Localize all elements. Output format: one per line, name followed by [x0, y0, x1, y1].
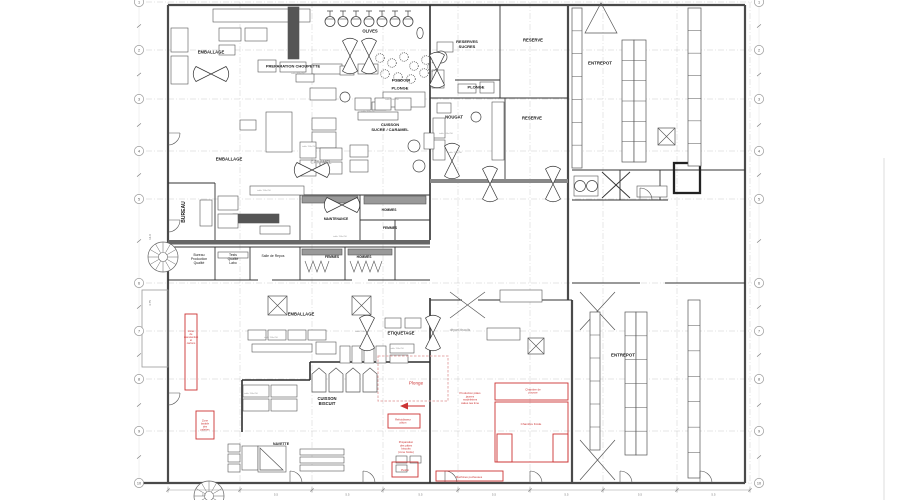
cooking-kettle: [338, 17, 348, 27]
machine: [300, 449, 344, 455]
grid-bubble-number: 2: [758, 48, 760, 52]
grid-bubble-number: 10: [137, 481, 141, 485]
oven: [312, 368, 326, 392]
room-label-cuisson: CUISSONBISCUIT: [317, 396, 336, 406]
grid-bubble-number: 6: [758, 281, 760, 285]
red-annotation-label-chambre-froide: Chambre froide: [521, 422, 542, 426]
machine: [228, 444, 240, 452]
machine: [266, 112, 292, 152]
machine: [385, 318, 401, 328]
machine: [219, 28, 241, 41]
grid-bubble-number: 1: [138, 0, 140, 4]
machine: [424, 133, 434, 149]
room-label-cuisson: CUISSONSUCRE / CARAMEL: [371, 122, 409, 132]
grid-bubble-number: 4: [758, 149, 760, 153]
equipment-label-table-700x700: table 700x700: [302, 145, 317, 148]
blob-shape: [420, 69, 429, 78]
equipment-label-table-700x700: table 700x700: [361, 110, 376, 113]
room-label-reserve: RESERVE: [522, 115, 542, 120]
door-arc: [168, 220, 180, 232]
room-label-fondoir: FONDOIR: [392, 77, 411, 82]
machine: [487, 328, 520, 340]
grid-bubble-number: 9: [758, 429, 760, 433]
blob-shape: [410, 62, 419, 71]
cooking-kettle: [325, 17, 335, 27]
room-label-nougat: NOUGAT: [445, 114, 463, 119]
room-label-bureau: BUREAU: [181, 201, 187, 223]
room-label-plonge: PLONGE: [468, 84, 485, 89]
red-annotation-label-p-trin: Pétrin: [401, 468, 409, 472]
equipment-label-table-700x700: table 700x700: [390, 347, 405, 350]
machine: [243, 399, 269, 411]
machine: [433, 118, 445, 138]
red-annotation-label-plonge: Plonge: [409, 381, 424, 386]
wall-band: [168, 240, 430, 245]
dimension-label: 5.5: [564, 493, 569, 497]
cooking-kettle: [390, 17, 400, 27]
door-arc: [363, 471, 375, 483]
dimension-label: 5.5: [638, 493, 643, 497]
kettle-stand: [392, 11, 398, 16]
red-zone-box: [185, 314, 197, 390]
red-zone-box: [553, 434, 568, 462]
machine: [252, 344, 312, 352]
machine: [350, 160, 368, 172]
room-label-maintenance: MAINTENANCE: [324, 217, 349, 221]
grid-bubble-number: 4: [138, 149, 140, 153]
red-annotation-label-chambre-de: Chambre depousse: [525, 387, 541, 394]
room-label-olives: OLIVES: [362, 28, 378, 33]
machine: [350, 145, 368, 157]
grid-bubble-number: 10: [757, 481, 761, 485]
room-label-emballage: EMBALLAGE: [198, 49, 225, 54]
red-annotation-label-zone: Zonelavabledespalettes: [200, 418, 210, 431]
machine: [228, 454, 240, 462]
red-annotation-label-refroidisseur: Refroidisseurpâton: [395, 417, 411, 424]
room-label-reserve: RESERVE: [523, 37, 543, 42]
machine: [218, 196, 238, 210]
equipment-label-table-700x700: table 700x700: [448, 151, 463, 154]
equipment-label-table-700x700: table 700x700: [244, 392, 259, 395]
pallet-rack: [688, 8, 701, 166]
kettle: [408, 140, 420, 152]
machine: [228, 464, 240, 472]
cross-box: [528, 338, 544, 354]
machine: [200, 200, 212, 226]
room-label-femmes: FEMMES: [325, 255, 340, 259]
equipment-label-table-700x700: table 700x700: [257, 189, 272, 192]
room-label-entrepot: ENTREPOT: [611, 353, 635, 358]
x-brace: [450, 292, 485, 318]
double-door-bowtie: [343, 38, 358, 74]
equipment-label-table-700x700: table 700x700: [439, 132, 454, 135]
kettle-stand: [353, 11, 359, 16]
double-door-bowtie: [483, 166, 498, 202]
door-arc: [290, 471, 302, 483]
machine: [245, 28, 267, 41]
room-label-preparation-choupette: PREPARATION CHOUPETTE: [266, 63, 321, 68]
kettle: [413, 160, 425, 172]
machine: [300, 465, 344, 471]
machine: [500, 290, 542, 302]
double-door-bowtie: [193, 67, 229, 82]
room-label-reserves: RESERVESSUCRES: [456, 39, 478, 49]
equipment-label-table-700x700: table 700x700: [264, 336, 279, 339]
room-label-salle-de-repos: Salle de Repos: [262, 254, 285, 258]
door-arc: [620, 471, 632, 483]
red-zone-box: [495, 402, 568, 462]
machine: [288, 7, 299, 59]
oven: [363, 368, 377, 392]
red-annotation-label-zone: Zonedemanutentionetcartons: [184, 329, 199, 345]
dimension-label: 4.75: [148, 300, 152, 306]
machine: [218, 214, 238, 228]
machine: [405, 318, 421, 328]
room-label-d-part-biscuits: départ biscuits: [450, 328, 471, 332]
room-label-caramel: CARAMEL: [311, 159, 332, 164]
storage-racks: [572, 8, 701, 478]
pallet-rack: [688, 300, 700, 478]
room-label-entrepot: ENTREPOT: [588, 61, 612, 66]
cooking-kettle: [403, 17, 413, 27]
machine: [312, 118, 336, 130]
roof-brace: [585, 3, 617, 33]
bench: [305, 261, 329, 272]
cross-box: [658, 128, 675, 145]
machine: [296, 74, 314, 82]
room-label-bureau: BureauProductionQualité: [191, 253, 207, 265]
wall-band: [430, 179, 568, 183]
red-zone-box: [497, 434, 512, 462]
machine: [316, 342, 336, 354]
blob-shape: [422, 56, 431, 65]
grid-bubble-number: 3: [758, 97, 760, 101]
door-arc: [700, 471, 712, 483]
double-door-bowtie: [445, 143, 460, 179]
machine: [240, 120, 256, 130]
machine: [437, 42, 453, 52]
room-label-femmes: FEMMES: [383, 226, 398, 230]
floor-plan-drawing: 112233445566778899101014.04.755.55.55.55…: [0, 0, 900, 500]
machine: [358, 112, 398, 120]
machine: [171, 28, 188, 52]
cooking-kettle: [377, 17, 387, 27]
room-label-tests: TestsQualitéLabo: [228, 253, 239, 265]
kettle: [417, 28, 423, 39]
red-flow-arrow-head: [400, 403, 408, 410]
machine: [271, 399, 297, 411]
dimension-label: 5.5: [202, 493, 207, 497]
door-arc: [168, 393, 180, 405]
double-door-bowtie: [546, 166, 561, 202]
machine: [260, 226, 290, 234]
machine: [242, 446, 258, 470]
machine: [243, 385, 269, 397]
grid-bubble-number: 1: [758, 0, 760, 4]
grid-bubble-number: 7: [758, 329, 760, 333]
kettle: [575, 181, 586, 192]
machine: [271, 385, 297, 397]
equipment-label-table-700x700: table 700x700: [291, 72, 306, 75]
machine: [437, 103, 451, 113]
room-label-navette: NAVETTE: [273, 442, 290, 446]
dimension-label: 5.5: [418, 493, 423, 497]
grid-bubble-number: 2: [138, 48, 140, 52]
kettle-stand: [366, 11, 372, 16]
room-label-etiquetage: ETIQUETAGE: [388, 330, 415, 335]
machine: [310, 88, 336, 100]
oven: [329, 368, 343, 392]
grid-lines: [139, 2, 884, 500]
grid-bubble-number: 3: [138, 97, 140, 101]
pallet-rack: [572, 8, 582, 168]
room-label-plonge: PLONGE: [392, 85, 409, 90]
loading-bay-outline: [142, 290, 168, 367]
kettle: [471, 112, 481, 122]
grid-bubble-number: 9: [138, 429, 140, 433]
kettle: [587, 181, 598, 192]
cross-box: [352, 296, 371, 315]
blob-shape: [400, 53, 409, 62]
double-door-bowtie: [362, 38, 377, 74]
dimension-label: 5.5: [711, 493, 716, 497]
room-label-hommes: HOMMES: [357, 255, 373, 259]
kettle-stand: [405, 11, 411, 16]
room-label-emballage: EMBALLAGE: [288, 311, 315, 316]
grid-bubble-number: 8: [138, 377, 140, 381]
kettle-stand: [340, 11, 346, 16]
cooking-kettle: [351, 17, 361, 27]
double-door-bowtie: [426, 315, 441, 351]
grid-bubble-number: 8: [758, 377, 760, 381]
dimension-label: 5.5: [345, 493, 350, 497]
grid-bubble-number: 7: [138, 329, 140, 333]
machine: [433, 140, 445, 160]
equipment-label-table-700x700: table 700x700: [355, 330, 370, 333]
double-door-bowtie: [360, 315, 375, 351]
kettle: [340, 92, 350, 102]
door-arc: [168, 133, 180, 145]
machine: [340, 346, 350, 363]
machine: [171, 56, 188, 84]
blob-shape: [381, 70, 390, 79]
cooking-kettle: [364, 17, 374, 27]
red-annotation-label-production-p-tes: Production pâtesjaunesmadeleinescakes te…: [460, 391, 482, 405]
machine: [364, 196, 426, 204]
red-annotation-label-machines-pocheuses: Machines pocheuses: [456, 475, 483, 479]
grid-bubble-number: 6: [138, 281, 140, 285]
dimension-label: 14.0: [148, 234, 152, 240]
machine: [233, 214, 279, 223]
blob-shape: [388, 59, 397, 68]
machine: [348, 249, 392, 255]
red-annotation-label-pr-paration: Préparationdes pâtesbiscuits(zone froide…: [398, 440, 414, 454]
grid-bubble-number: 5: [758, 197, 760, 201]
machine: [300, 142, 316, 158]
cross-box: [268, 296, 287, 315]
kettle-stand: [327, 11, 333, 16]
machine: [300, 457, 344, 463]
machine: [320, 148, 342, 160]
grid-bubble-number: 5: [138, 197, 140, 201]
machine: [308, 330, 326, 340]
equipment-label-table-700x700: table 700x700: [333, 235, 348, 238]
kettle-stand: [379, 11, 385, 16]
floor-plan-sheet: 112233445566778899101014.04.755.55.55.55…: [0, 0, 900, 500]
machine: [302, 249, 342, 255]
door-arc: [530, 471, 542, 483]
thick-wall-room: [674, 163, 700, 193]
machine: [637, 186, 667, 197]
machine: [288, 330, 306, 340]
equipment-label-table-700x700: table 700x700: [385, 98, 400, 101]
machine: [355, 98, 371, 110]
dimension-label: 5.5: [492, 493, 497, 497]
machine: [492, 102, 504, 160]
room-label-emballage: EMBALLAGE: [216, 156, 243, 161]
bench: [350, 261, 382, 272]
dimension-label: 5.5: [274, 493, 279, 497]
room-label-hommes: HOMMES: [382, 208, 398, 212]
oven: [346, 368, 360, 392]
